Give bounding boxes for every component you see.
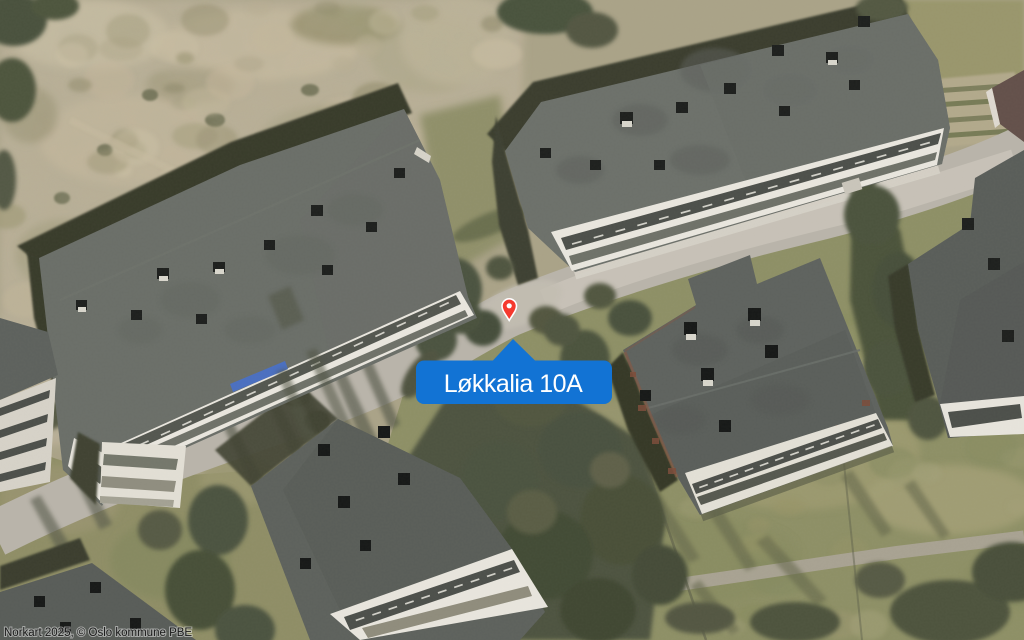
svg-text:Norkart 2025, © Oslo kommune P: Norkart 2025, © Oslo kommune PBE [4, 627, 192, 639]
svg-text:Løkkalia 10A: Løkkalia 10A [444, 370, 583, 398]
